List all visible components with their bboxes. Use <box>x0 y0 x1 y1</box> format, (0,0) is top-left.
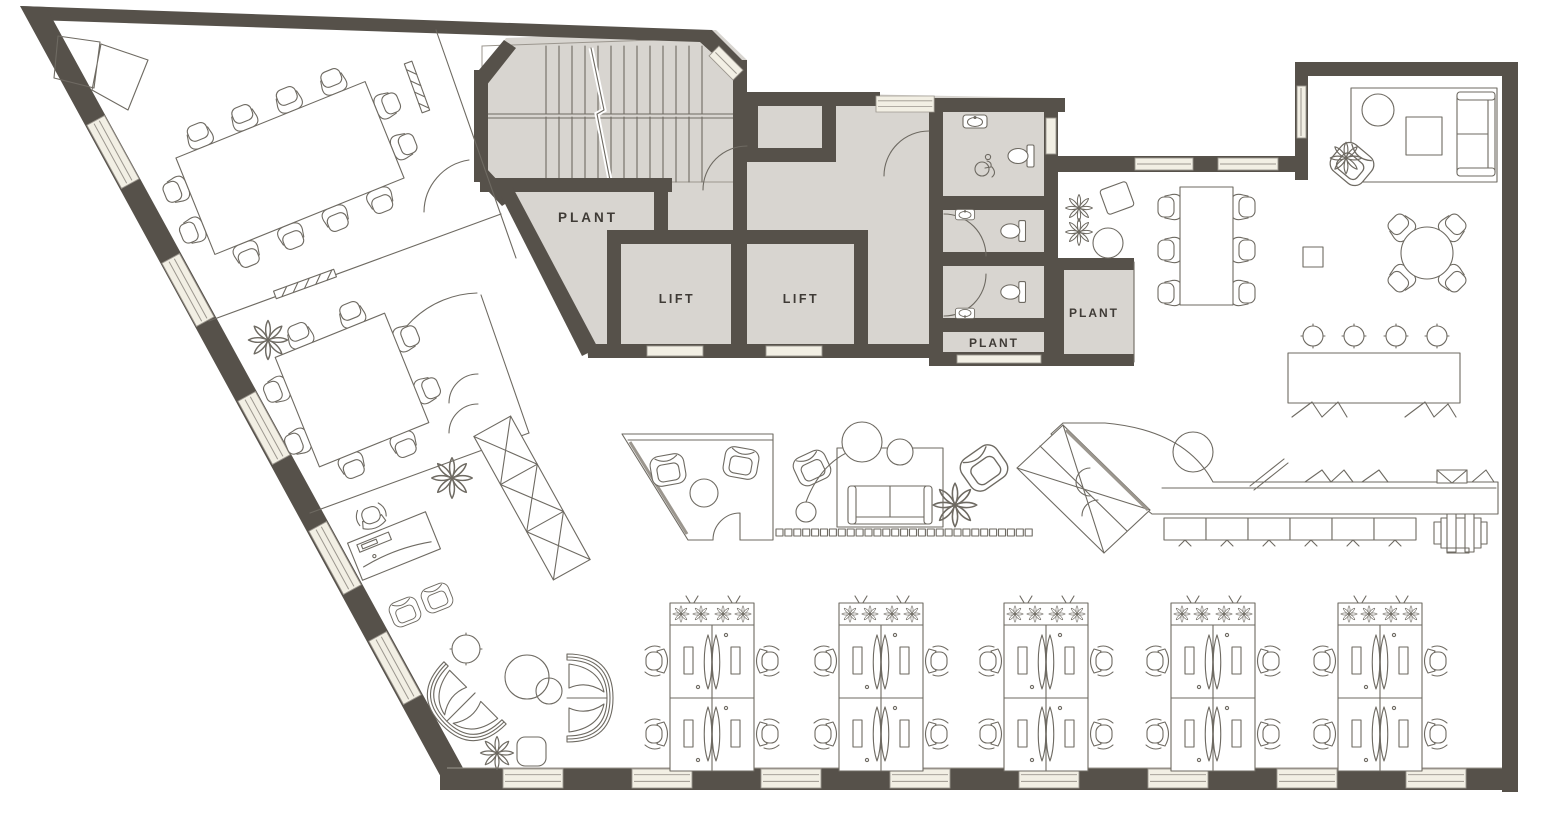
plant-icon <box>1066 195 1093 222</box>
pouf <box>1099 181 1134 215</box>
floor-lamp-shade <box>887 439 913 465</box>
label-plant-strip: PLANT <box>969 336 1019 350</box>
east-pocket <box>1066 181 1135 258</box>
round-table <box>1362 94 1394 126</box>
label-plant-store: PLANT <box>1069 306 1119 320</box>
reception-desk <box>348 512 441 581</box>
plant-icon <box>481 737 514 770</box>
label-lift-2: LIFT <box>783 292 819 306</box>
open-office-desks <box>645 596 1447 771</box>
coffee-table <box>1406 117 1442 155</box>
desk-cluster <box>1313 596 1447 771</box>
floor-plan-page: PLANT LIFT LIFT PLANT PLANT <box>0 0 1562 820</box>
lounge-centre <box>649 422 1033 536</box>
floor-lamp-base <box>796 502 816 522</box>
bar-area <box>1288 324 1460 417</box>
desk-cluster <box>1146 596 1280 771</box>
service-cart <box>1434 514 1487 553</box>
label-lift-1: LIFT <box>659 292 695 306</box>
plant-icon <box>1066 219 1093 246</box>
reception-area <box>348 416 591 629</box>
curved-sofa <box>567 654 613 742</box>
plant-icon <box>432 458 473 499</box>
high-table <box>1288 353 1460 403</box>
label-plant-room: PLANT <box>558 210 618 225</box>
storage-closet <box>474 416 590 580</box>
lounge-north-east <box>1326 88 1497 296</box>
lounge-chair <box>956 440 1012 495</box>
long-table <box>1180 187 1233 305</box>
pouf <box>517 737 546 766</box>
sofa <box>1457 92 1495 176</box>
desk-cluster <box>645 596 779 771</box>
round-dining-table <box>1401 227 1453 279</box>
long-table-area <box>1158 187 1323 306</box>
floor-plan-drawing: PLANT LIFT LIFT PLANT PLANT <box>0 0 1562 820</box>
side-table <box>1303 247 1323 267</box>
facade-window <box>87 116 139 189</box>
plant-icon <box>933 483 977 527</box>
plant-icon <box>249 321 288 360</box>
round-dining-set <box>1384 210 1471 297</box>
sofa <box>848 486 932 524</box>
coffee-table <box>505 655 549 699</box>
planter-screen <box>776 529 1032 536</box>
cabinet-run <box>1164 518 1416 546</box>
desk-cluster <box>814 596 948 771</box>
round-table <box>1093 228 1123 258</box>
booth-table <box>690 479 718 507</box>
desk-cluster <box>979 596 1113 771</box>
floor-lamp-shade <box>842 422 882 462</box>
kitchen-counter <box>1017 423 1498 553</box>
